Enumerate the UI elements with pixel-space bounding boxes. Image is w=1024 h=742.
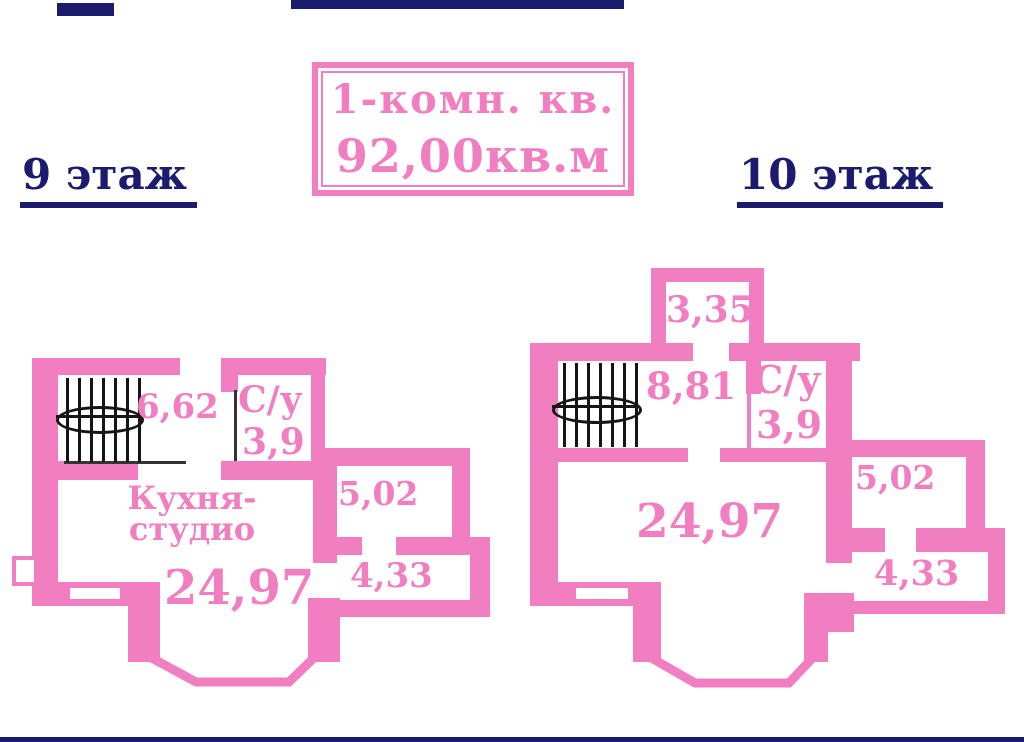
stairs-rail-icon: [552, 396, 642, 424]
kitchen-label-line2: студио: [108, 514, 276, 545]
wall: [558, 448, 688, 462]
wall: [221, 358, 326, 375]
wall: [826, 593, 854, 632]
bathroom-label: С/у: [753, 361, 821, 399]
window: [70, 588, 120, 599]
room-area-main: 24,97: [636, 498, 783, 545]
bay-pillar: [633, 582, 661, 662]
room-area-top: 5,02: [855, 461, 935, 494]
room-area-bathroom: 3,9: [756, 406, 822, 444]
window: [576, 588, 628, 599]
wall: [966, 440, 985, 532]
floorplan-page: 1-комн. кв. 92,00кв.м 9 этаж 10 этаж: [0, 0, 1024, 742]
floor-label-9: 9 этаж: [20, 150, 197, 208]
stairs-rail-line: [552, 405, 636, 408]
title-box: 1-комн. кв. 92,00кв.м: [312, 62, 634, 196]
room-area-kitchen: 24,97: [164, 564, 314, 612]
kitchen-label: Кухня- студио: [108, 483, 276, 545]
wall: [651, 268, 764, 282]
wall: [322, 448, 470, 466]
wall: [452, 448, 470, 538]
bathroom-label: С/у: [238, 382, 303, 418]
bottom-bar: [0, 737, 1024, 742]
top-center-bar: [291, 0, 624, 9]
room-area-bathroom: 3,9: [242, 424, 305, 460]
room-area-bottom: 4,33: [874, 556, 959, 591]
stairs-rail-line: [56, 415, 138, 418]
title-box-inner: 1-комн. кв. 92,00кв.м: [321, 71, 625, 187]
room-area-stairs: 6,62: [136, 390, 219, 424]
wall: [720, 448, 831, 462]
top-left-bar: [57, 3, 114, 16]
apartment-area-label: 92,00кв.м: [336, 129, 610, 183]
room-area-stairs: 8,81: [646, 368, 736, 405]
stairs-rail-icon: [56, 406, 144, 434]
room-area-top: 5,02: [338, 477, 418, 510]
wall: [328, 600, 490, 617]
room-area-balcony: 3,35: [666, 292, 754, 328]
room-area-bottom: 4,33: [350, 559, 433, 593]
wall: [322, 537, 362, 555]
bay-pillar: [128, 582, 160, 662]
wall: [851, 601, 1005, 614]
wall: [848, 528, 885, 552]
bathroom-partition-line: [747, 393, 751, 449]
wall: [988, 528, 1005, 614]
apartment-type-label: 1-комн. кв.: [331, 76, 615, 123]
wall: [221, 461, 325, 480]
bay-pillar: [804, 593, 828, 662]
window-ledge: [12, 556, 38, 586]
wall: [396, 537, 480, 555]
wall: [848, 440, 985, 457]
wall: [530, 343, 558, 606]
bathroom-partition-line: [234, 390, 237, 462]
floor-label-10: 10 этаж: [737, 150, 943, 208]
